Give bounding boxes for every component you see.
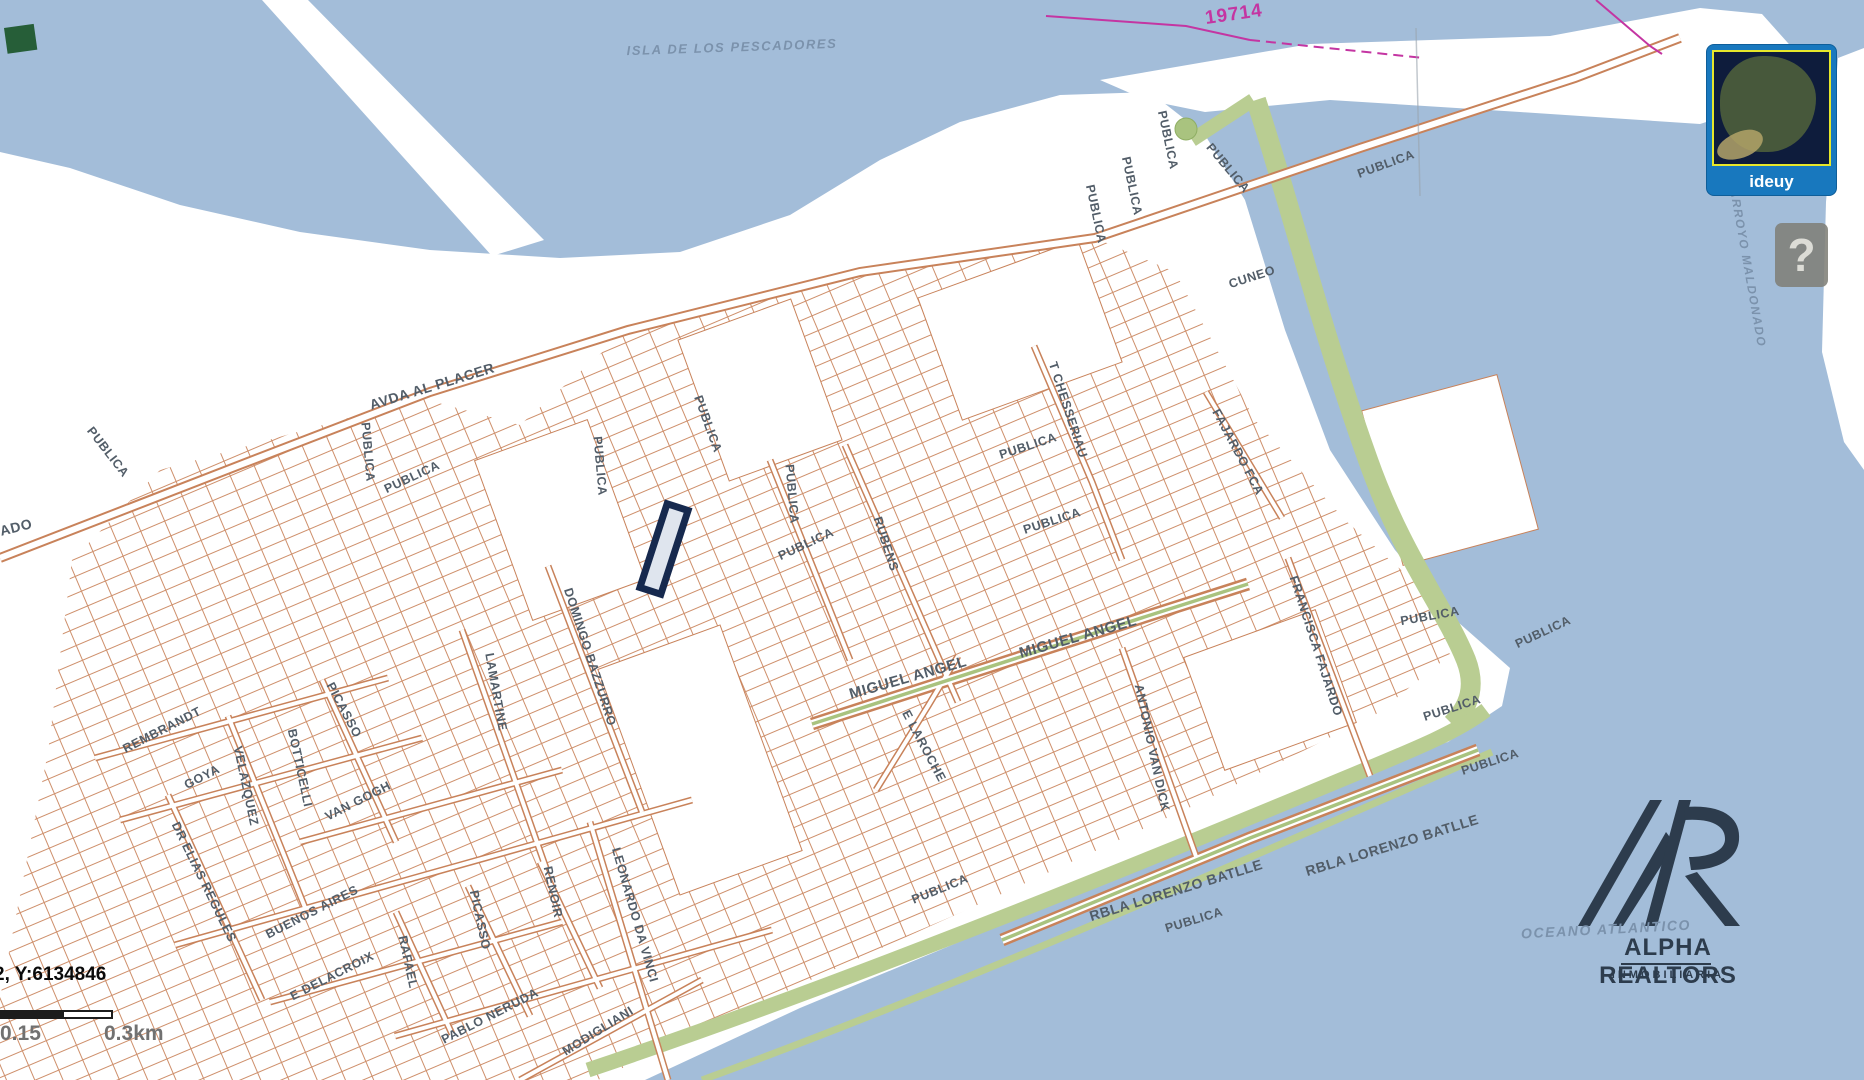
scale-bar-segment-dark <box>0 1010 62 1019</box>
coordinates-readout: 2, Y:6134846 <box>0 964 106 986</box>
minimap-widget[interactable]: ideuy <box>1707 45 1836 195</box>
green-roundabout <box>1175 118 1197 140</box>
help-button[interactable]: ? <box>1775 223 1828 287</box>
map-viewport: ISLA DE LOS PESCADORESARROYO MALDONADOOC… <box>0 0 1864 1080</box>
minimap-label: ideuy <box>1707 172 1836 192</box>
scale-bar-segment-light <box>62 1010 113 1019</box>
logo-divider <box>1621 963 1711 965</box>
scale-bar-mid-label: 0.15 <box>0 1022 41 1046</box>
green-patch-icon <box>4 24 37 54</box>
question-mark-icon: ? <box>1787 232 1815 278</box>
logo-title: ALPHA REALTORS <box>1556 934 1780 990</box>
logo-subtitle: INMOBILIARIA <box>1556 969 1780 981</box>
minimap-sand-area <box>1713 125 1767 165</box>
map-canvas[interactable] <box>0 0 1864 1080</box>
scale-bar-end-label: 0.3km <box>104 1022 164 1046</box>
minimap-satellite-image <box>1712 50 1831 166</box>
